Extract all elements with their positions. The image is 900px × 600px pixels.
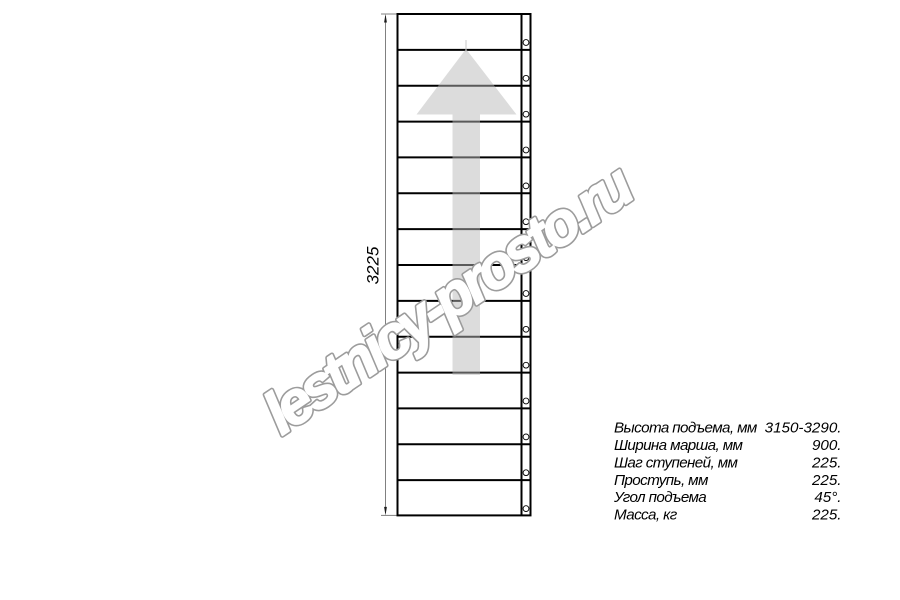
svg-text:Ширина марша, мм: Ширина марша, мм — [614, 437, 744, 454]
svg-text:45°.: 45°. — [814, 489, 841, 506]
svg-text:Высота подъема, мм: Высота подъема, мм — [614, 420, 758, 437]
svg-text:Шаг ступеней, мм: Шаг ступеней, мм — [614, 454, 739, 471]
svg-text:3225: 3225 — [364, 246, 383, 284]
svg-text:Угол подъема: Угол подъема — [613, 489, 706, 506]
svg-text:Масса, кг: Масса, кг — [614, 507, 678, 524]
svg-text:225.: 225. — [811, 454, 842, 471]
svg-text:Проступь, мм: Проступь, мм — [614, 472, 709, 489]
svg-text:3150-3290.: 3150-3290. — [765, 420, 842, 437]
svg-text:225.: 225. — [811, 507, 842, 524]
svg-text:225.: 225. — [811, 472, 842, 489]
svg-text:900.: 900. — [812, 437, 842, 454]
